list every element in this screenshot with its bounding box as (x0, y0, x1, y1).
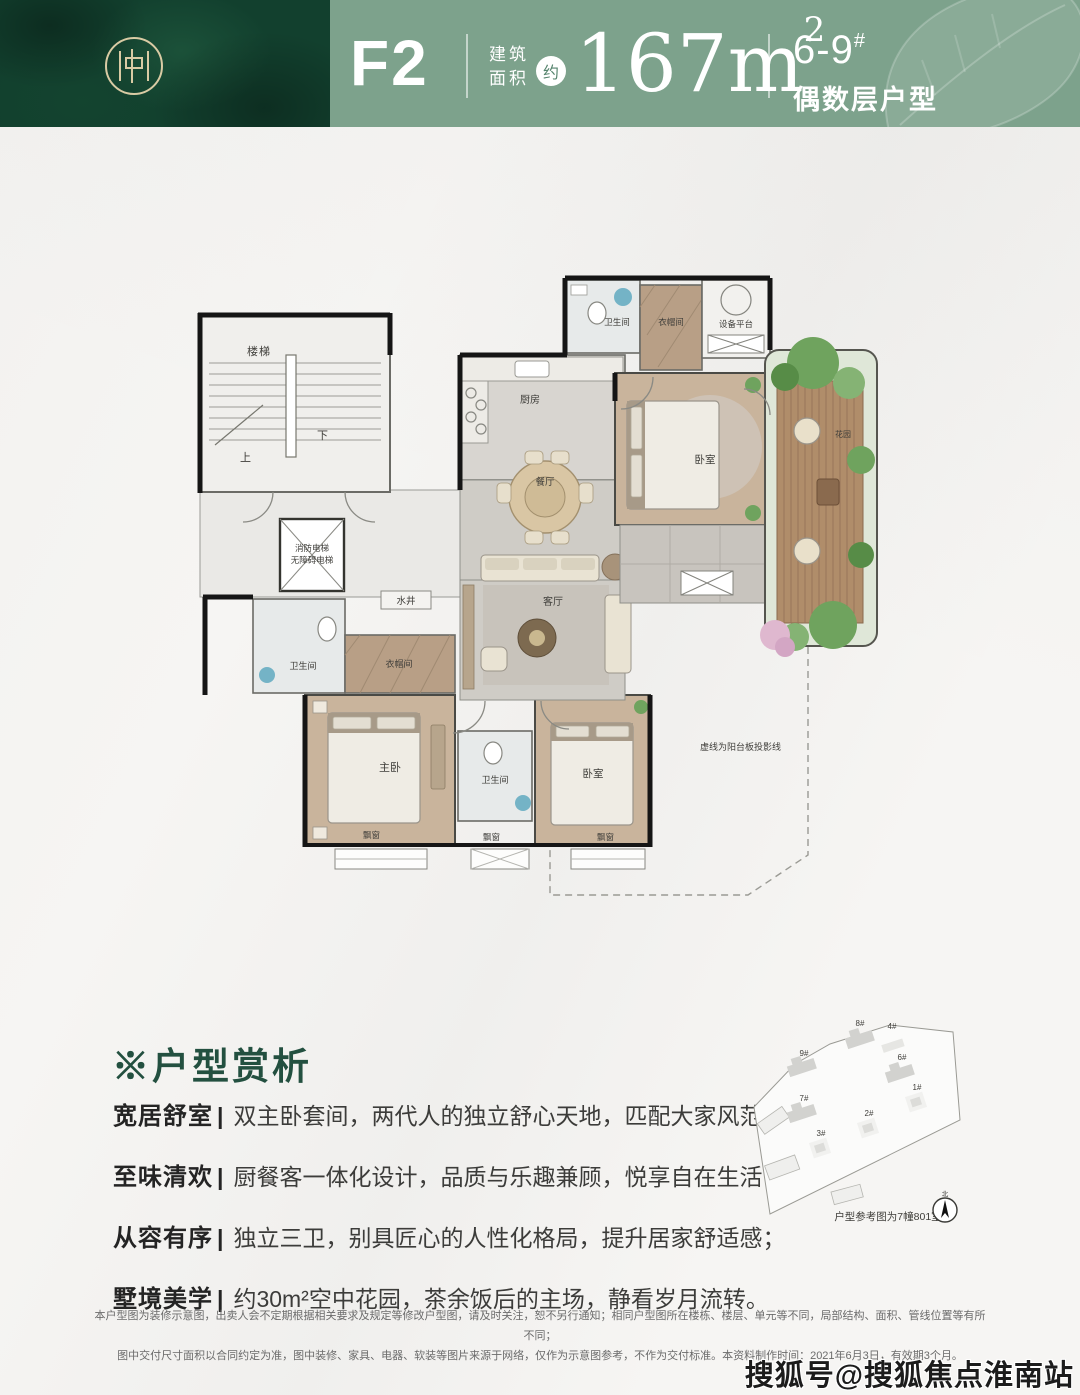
label-bath-left: 卫生间 (289, 660, 316, 671)
label-equipment: 设备平台 (719, 319, 753, 329)
room-bath-middle: 卫生间 (458, 731, 532, 821)
building-label-1: 1# (913, 1083, 922, 1092)
label-bedroom-south: 卧室 (583, 767, 604, 780)
room-bedroom-south: 卧室 (535, 695, 650, 845)
brand-seal-glyph (119, 51, 149, 81)
site-plan: 8# 4# 9# 6# 7# 1# 2# 3# 户型参考图为7幢801室 北 (740, 1012, 1070, 1230)
unit-code: F2 (350, 26, 460, 100)
building-label-9: 9# (800, 1049, 809, 1058)
analysis-item: 宽居舒室|双主卧套间，两代人的独立舒心天地，匹配大家风范； (113, 1096, 733, 1131)
separator: | (217, 1164, 223, 1190)
area-value: 167m2 (575, 18, 825, 110)
room-bath-top: 卫生间 (565, 280, 640, 353)
room-stairs: 楼梯 上 下 (200, 315, 390, 492)
label-down: 下 (317, 430, 328, 442)
label-master: 主卧 (379, 761, 401, 774)
room-cloak-top: 衣帽间 (640, 285, 702, 370)
label-projection-note: 虚线为阳台板投影线 (700, 741, 781, 752)
label-cloak-top: 衣帽间 (658, 317, 684, 327)
label-living: 客厅 (543, 595, 563, 608)
room-equipment-platform: 设备平台 (702, 280, 770, 358)
compass-north-label: 北 (942, 1190, 949, 1198)
label-sky-garden: 花园 (835, 429, 851, 439)
brand-panel (0, 0, 330, 127)
building-label-3: 3# (817, 1129, 826, 1138)
header-divider-2 (768, 34, 770, 98)
label-bay-2: 飘窗 (483, 832, 500, 842)
label-bay-3: 飘窗 (597, 832, 614, 842)
room-master-bedroom: 主卧 (305, 695, 455, 845)
label-elevator-2: 无障碍电梯 (291, 555, 334, 565)
label-elevator-1: 消防电梯 (295, 543, 330, 553)
analysis-list: 宽居舒室|双主卧套间，两代人的独立舒心天地，匹配大家风范； 至味清欢|厨餐客一体… (113, 1096, 733, 1314)
separator: | (217, 1103, 223, 1129)
header-divider (466, 34, 468, 98)
label-bedroom-north: 卧室 (695, 453, 716, 466)
corridor (620, 525, 770, 603)
room-elevator: 消防电梯 无障碍电梯 (280, 519, 344, 591)
label-bath-middle: 卫生间 (481, 774, 508, 785)
analysis-item: 从容有序|独立三卫，别具匠心的人性化格局，提升居家舒适感； (113, 1218, 733, 1253)
building-label-6: 6# (898, 1053, 907, 1062)
area-label-bottom: 面积 (489, 67, 529, 91)
label-kitchen: 厨房 (520, 393, 540, 406)
water-shaft: 水井 (381, 591, 431, 609)
room-bath-left: 卫生间 (253, 599, 345, 693)
site-caption: 户型参考图为7幢801室 (834, 1210, 941, 1223)
header-bar: F2 建筑 面积 约 167m2 6-9# 偶数层户型 (0, 0, 1080, 127)
approx-badge: 约 (536, 56, 566, 86)
building-range: 6-9# (793, 28, 866, 73)
label-up: 上 (240, 451, 251, 464)
area-label: 建筑 面积 (489, 43, 529, 91)
room-cloak-left: 衣帽间 (345, 635, 455, 693)
brand-logo-icon (105, 37, 163, 95)
building-label-7: 7# (800, 1094, 809, 1103)
building-label-4: 4# (888, 1022, 897, 1031)
watermark: 搜狐号@搜狐焦点淮南站 (745, 1352, 1074, 1394)
label-dining: 餐厅 (535, 476, 555, 488)
building-label-8: 8# (856, 1019, 865, 1028)
label-cloak-left: 衣帽间 (385, 658, 412, 669)
compass-icon: 北 (933, 1190, 957, 1222)
room-living: 客厅 (460, 554, 631, 700)
label-stairs: 楼梯 (247, 344, 271, 358)
label-bath-top: 卫生间 (604, 317, 630, 327)
floor-plan: 楼梯 上 下 消防电梯 无障碍电梯 水井 卫生间 (185, 255, 885, 915)
building-label-2: 2# (865, 1109, 874, 1118)
label-water-shaft: 水井 (396, 595, 415, 607)
label-bay-1: 飘窗 (363, 830, 380, 840)
poster-page: F2 建筑 面积 约 167m2 6-9# 偶数层户型 楼梯 上 (0, 0, 1080, 1395)
separator: | (217, 1225, 223, 1251)
analysis-item: 至味清欢|厨餐客一体化设计，品质与乐趣兼顾，悦享自在生活； (113, 1157, 733, 1192)
room-bedroom-north: 卧室 (615, 373, 765, 525)
disclaimer-line-1: 本户型图为装修示意图，出卖人会不定期根据相关要求及规定等修改户型图，请及时关注，… (90, 1306, 990, 1346)
terrace-garden: 花园 (760, 337, 877, 657)
floor-note: 偶数层户型 (793, 78, 938, 117)
area-label-top: 建筑 (489, 43, 529, 67)
analysis-title: ※户型赏析 (112, 1036, 312, 1090)
